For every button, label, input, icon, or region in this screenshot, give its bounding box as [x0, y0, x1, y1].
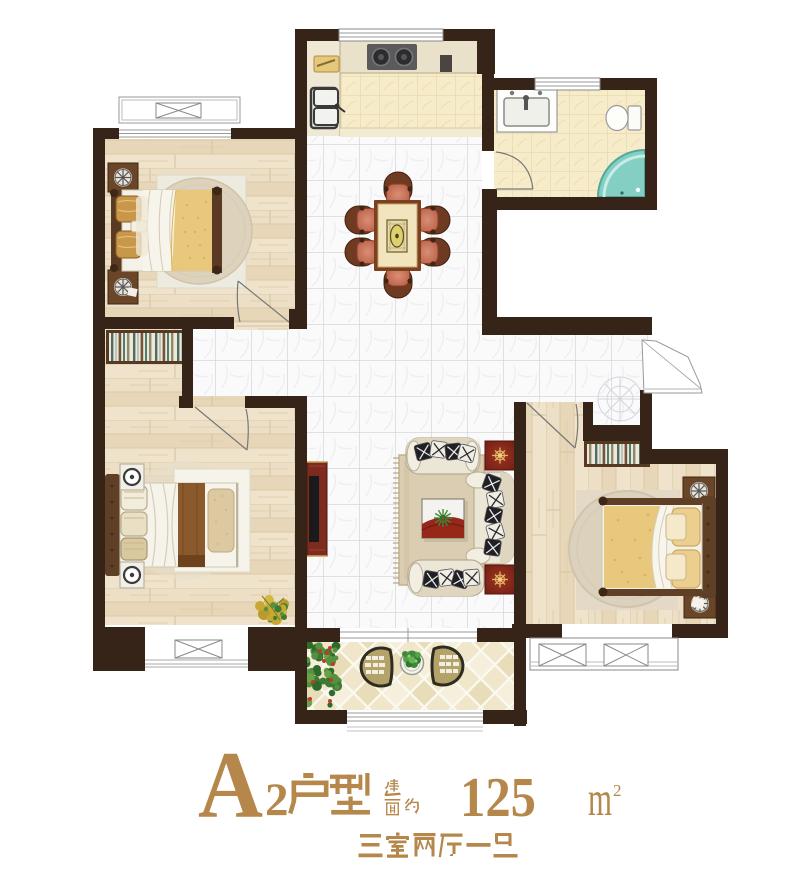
- svg-text:2: 2: [613, 781, 622, 800]
- svg-text:m: m: [588, 771, 612, 826]
- svg-text:A: A: [198, 732, 263, 838]
- svg-text:125: 125: [460, 767, 536, 829]
- svg-text:2: 2: [265, 774, 289, 826]
